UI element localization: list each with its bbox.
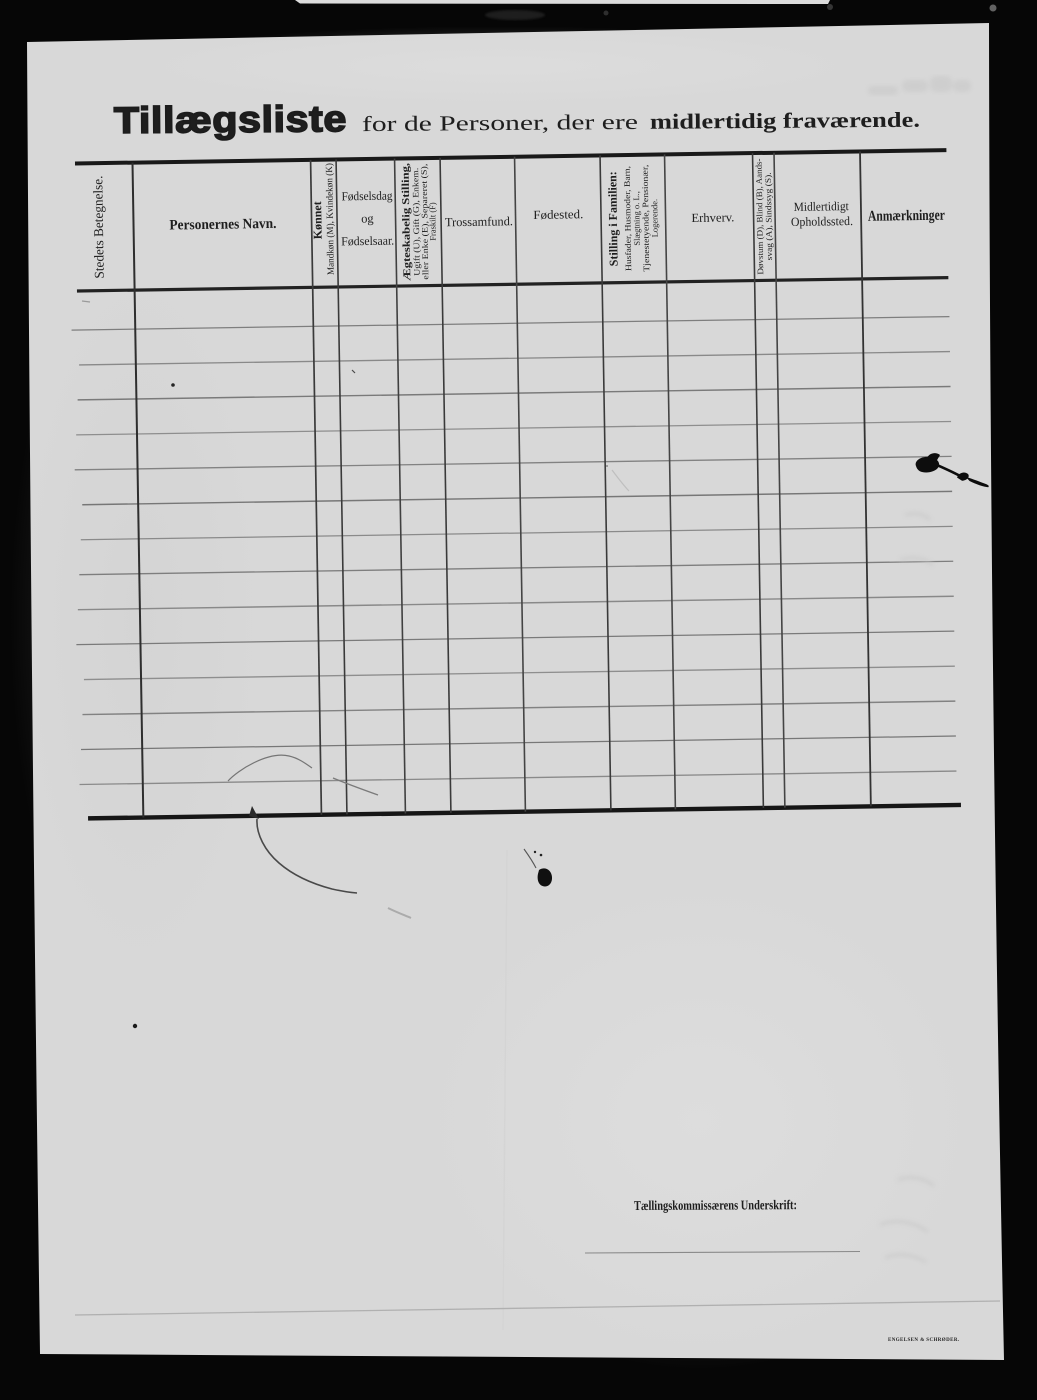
svg-text:Logerende.: Logerende.	[649, 199, 660, 238]
svg-text:Mandkøn (M), Kvindekøn (K): Mandkøn (M), Kvindekøn (K)	[324, 163, 337, 275]
svg-text:Tællingskommissærens Underskr: Tællingskommissærens Underskrift:	[634, 1197, 797, 1213]
svg-text:ENGELSEN & SCHRØDER.: ENGELSEN & SCHRØDER.	[888, 1338, 960, 1343]
svg-text:svag (A), Sindssyg (S).: svag (A), Sindssyg (S).	[763, 172, 774, 260]
svg-text:for de Personer, der ere: for de Personer, der ere	[362, 110, 638, 136]
svg-text:Trossamfund.: Trossamfund.	[445, 214, 513, 229]
svg-text:Anmærkninger: Anmærkninger	[868, 208, 945, 225]
svg-text:Personernes Navn.: Personernes Navn.	[169, 216, 276, 234]
svg-text:Fødested.: Fødested.	[533, 207, 583, 222]
svg-text:Erhverv.: Erhverv.	[691, 210, 734, 225]
svg-text:Tillægsliste: Tillægsliste	[114, 98, 347, 141]
svg-text:Opholdssted.: Opholdssted.	[791, 214, 853, 229]
svg-text:midlertidig fraværende.: midlertidig fraværende.	[650, 108, 920, 134]
svg-text:og: og	[361, 211, 374, 225]
svg-text:Stilling i Familien:: Stilling i Familien:	[605, 171, 620, 266]
svg-text:Stedets Betegnelse.: Stedets Betegnelse.	[90, 175, 107, 278]
svg-text:Fraskilt (F): Fraskilt (F)	[427, 202, 438, 241]
svg-text:Fødselsdag: Fødselsdag	[341, 189, 392, 204]
svg-text:Fødselsaar.: Fødselsaar.	[341, 234, 394, 249]
svg-text:Kønnet: Kønnet	[310, 201, 325, 239]
svg-text:Midlertidigt: Midlertidigt	[794, 199, 850, 214]
